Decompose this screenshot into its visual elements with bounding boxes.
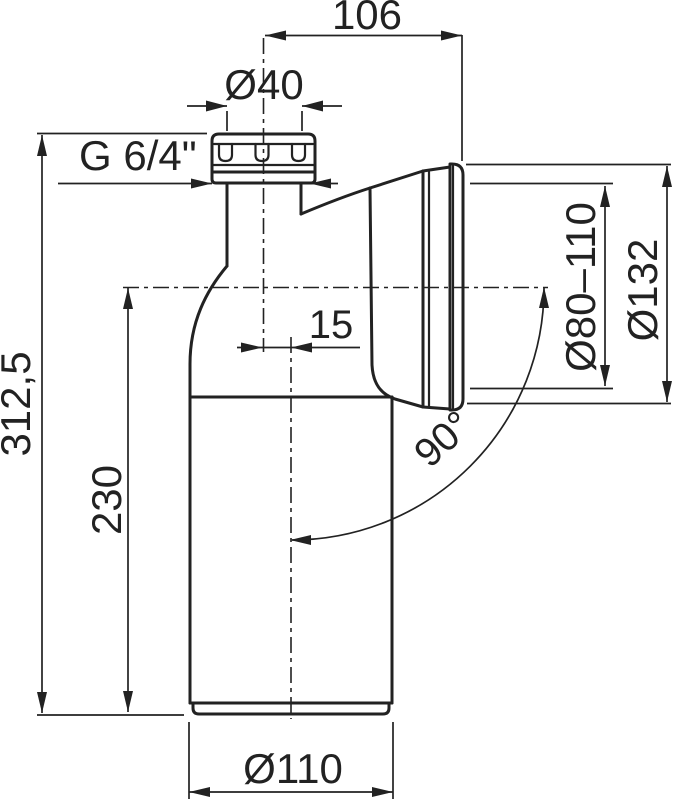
dim-label-90deg: 90° bbox=[406, 403, 480, 476]
arrowhead-down bbox=[662, 381, 672, 402]
bend-outer-curve bbox=[190, 266, 227, 397]
outlet-cone-left-edge bbox=[370, 188, 423, 407]
arrowhead-down bbox=[37, 692, 47, 713]
nut-slot-right bbox=[292, 144, 305, 161]
dim-label-106: 106 bbox=[332, 0, 402, 38]
arrowhead-left bbox=[265, 31, 286, 41]
arrowhead-up bbox=[123, 288, 133, 309]
dim-total-height: 312,5 bbox=[0, 134, 207, 716]
dim-outlet-axis-height: 230 bbox=[83, 288, 133, 712]
dim-pipe-diameter: Ø110 bbox=[189, 722, 393, 799]
arrowhead-left bbox=[191, 179, 212, 189]
dim-outlet-clamp-range: Ø80–110 bbox=[470, 184, 613, 389]
arrowhead-up bbox=[539, 287, 549, 308]
dim-label-15: 15 bbox=[309, 303, 354, 347]
dim-label-230: 230 bbox=[83, 465, 130, 535]
arrowhead-left bbox=[290, 535, 311, 545]
arrowhead-up bbox=[662, 166, 672, 187]
technical-drawing-canvas: 106 Ø40 G 6/4" 15 312,5 2 bbox=[0, 0, 673, 800]
arrowhead-left bbox=[241, 343, 263, 353]
part-outline bbox=[190, 134, 463, 714]
flange-top-edge bbox=[423, 167, 450, 171]
arrowhead-down bbox=[123, 691, 133, 712]
arrowhead-right bbox=[310, 179, 331, 189]
dim-label-o132: Ø132 bbox=[619, 239, 666, 342]
dim-axis-offset: 15 bbox=[237, 303, 360, 353]
dim-label-3125: 312,5 bbox=[0, 351, 39, 456]
arrowhead-right bbox=[441, 31, 462, 41]
dim-label-thread: G 6/4" bbox=[79, 132, 197, 179]
pipe-fitting-drawing: 106 Ø40 G 6/4" 15 312,5 2 bbox=[0, 0, 673, 800]
arrowhead-right bbox=[302, 101, 323, 112]
nut-slot-left bbox=[219, 144, 232, 161]
dim-label-o40: Ø40 bbox=[224, 61, 303, 108]
dim-label-o80-110: Ø80–110 bbox=[557, 202, 604, 372]
bend-top-edge bbox=[301, 188, 370, 214]
outlet-cone-top-edge bbox=[370, 171, 423, 188]
arrowhead-up bbox=[37, 135, 47, 156]
dim-label-o110: Ø110 bbox=[243, 745, 343, 792]
arrowhead-right bbox=[372, 787, 393, 797]
arrowhead-left bbox=[189, 787, 210, 797]
dim-inlet-diameter: Ø40 bbox=[187, 61, 342, 131]
nut-slot-middle bbox=[256, 144, 269, 161]
